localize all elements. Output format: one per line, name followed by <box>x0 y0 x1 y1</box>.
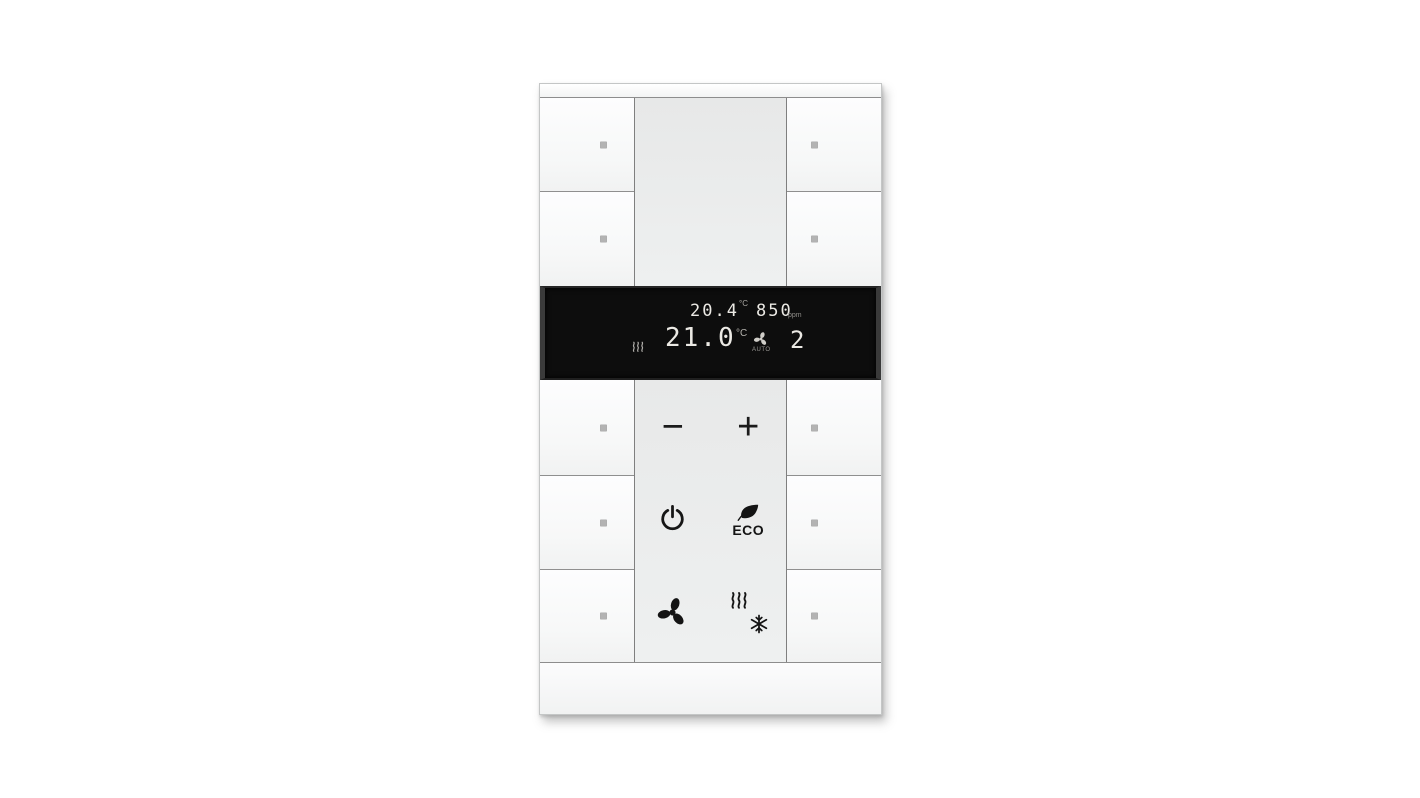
temperature-adjust-row: − + <box>635 380 786 474</box>
fan-level-value: 2 <box>790 326 806 354</box>
air-quality-unit: ppm <box>788 312 802 319</box>
fan-heatcool-row <box>635 568 786 662</box>
fan-icon <box>656 596 689 634</box>
eco-mode-label: ECO <box>732 504 764 538</box>
heat-waves-icon <box>631 340 645 360</box>
button-left-1[interactable] <box>540 98 634 191</box>
lcd-display: 20.4 °C 850 ppm 21.0 °C <box>540 286 881 380</box>
led-indicator <box>600 519 607 526</box>
ambient-temperature-unit: °C <box>739 299 748 308</box>
bezel-top <box>540 84 881 98</box>
button-panel: 20.4 °C 850 ppm 21.0 °C <box>540 98 881 662</box>
button-right-4[interactable] <box>787 475 881 569</box>
eco-text: ECO <box>732 522 764 538</box>
mode-row: ECO <box>635 474 786 568</box>
led-indicator <box>600 613 607 620</box>
button-left-2[interactable] <box>540 191 634 286</box>
button-right-1[interactable] <box>787 98 881 191</box>
led-indicator <box>600 236 607 243</box>
led-indicator <box>811 613 818 620</box>
setpoint-temperature-value: 21.0 <box>665 323 736 353</box>
button-left-5[interactable] <box>540 569 634 662</box>
button-right-3[interactable] <box>787 380 881 475</box>
led-indicator <box>600 141 607 148</box>
page: 20.4 °C 850 ppm 21.0 °C <box>0 0 1420 798</box>
button-right-2[interactable] <box>787 191 881 286</box>
fan-auto-icon: AUTO <box>752 331 771 353</box>
fan-mode-label: AUTO <box>752 347 771 353</box>
fan-button[interactable] <box>635 568 711 662</box>
plus-glyph: + <box>737 408 759 446</box>
heat-cool-icon <box>726 591 770 639</box>
snowflake-icon <box>749 614 769 639</box>
plus-button[interactable]: + <box>711 380 787 474</box>
eco-button[interactable]: ECO <box>711 474 787 568</box>
led-indicator <box>600 424 607 431</box>
heat-waves-icon <box>729 591 749 618</box>
bezel-bottom <box>540 662 881 714</box>
setpoint-temperature-unit: °C <box>736 328 747 339</box>
led-indicator <box>811 519 818 526</box>
power-button[interactable] <box>635 474 711 568</box>
thermostat-device: 20.4 °C 850 ppm 21.0 °C <box>539 83 882 715</box>
minus-button[interactable]: − <box>635 380 711 474</box>
center-control-panel: − + <box>634 380 787 662</box>
ambient-temperature-value: 20.4 <box>690 301 739 321</box>
center-rocker-blank[interactable] <box>634 98 787 286</box>
button-left-4[interactable] <box>540 475 634 569</box>
button-left-3[interactable] <box>540 380 634 475</box>
led-indicator <box>811 236 818 243</box>
power-icon <box>658 504 687 538</box>
button-right-5[interactable] <box>787 569 881 662</box>
heat-cool-button[interactable] <box>711 568 787 662</box>
led-indicator <box>811 424 818 431</box>
minus-glyph: − <box>662 408 684 446</box>
led-indicator <box>811 141 818 148</box>
